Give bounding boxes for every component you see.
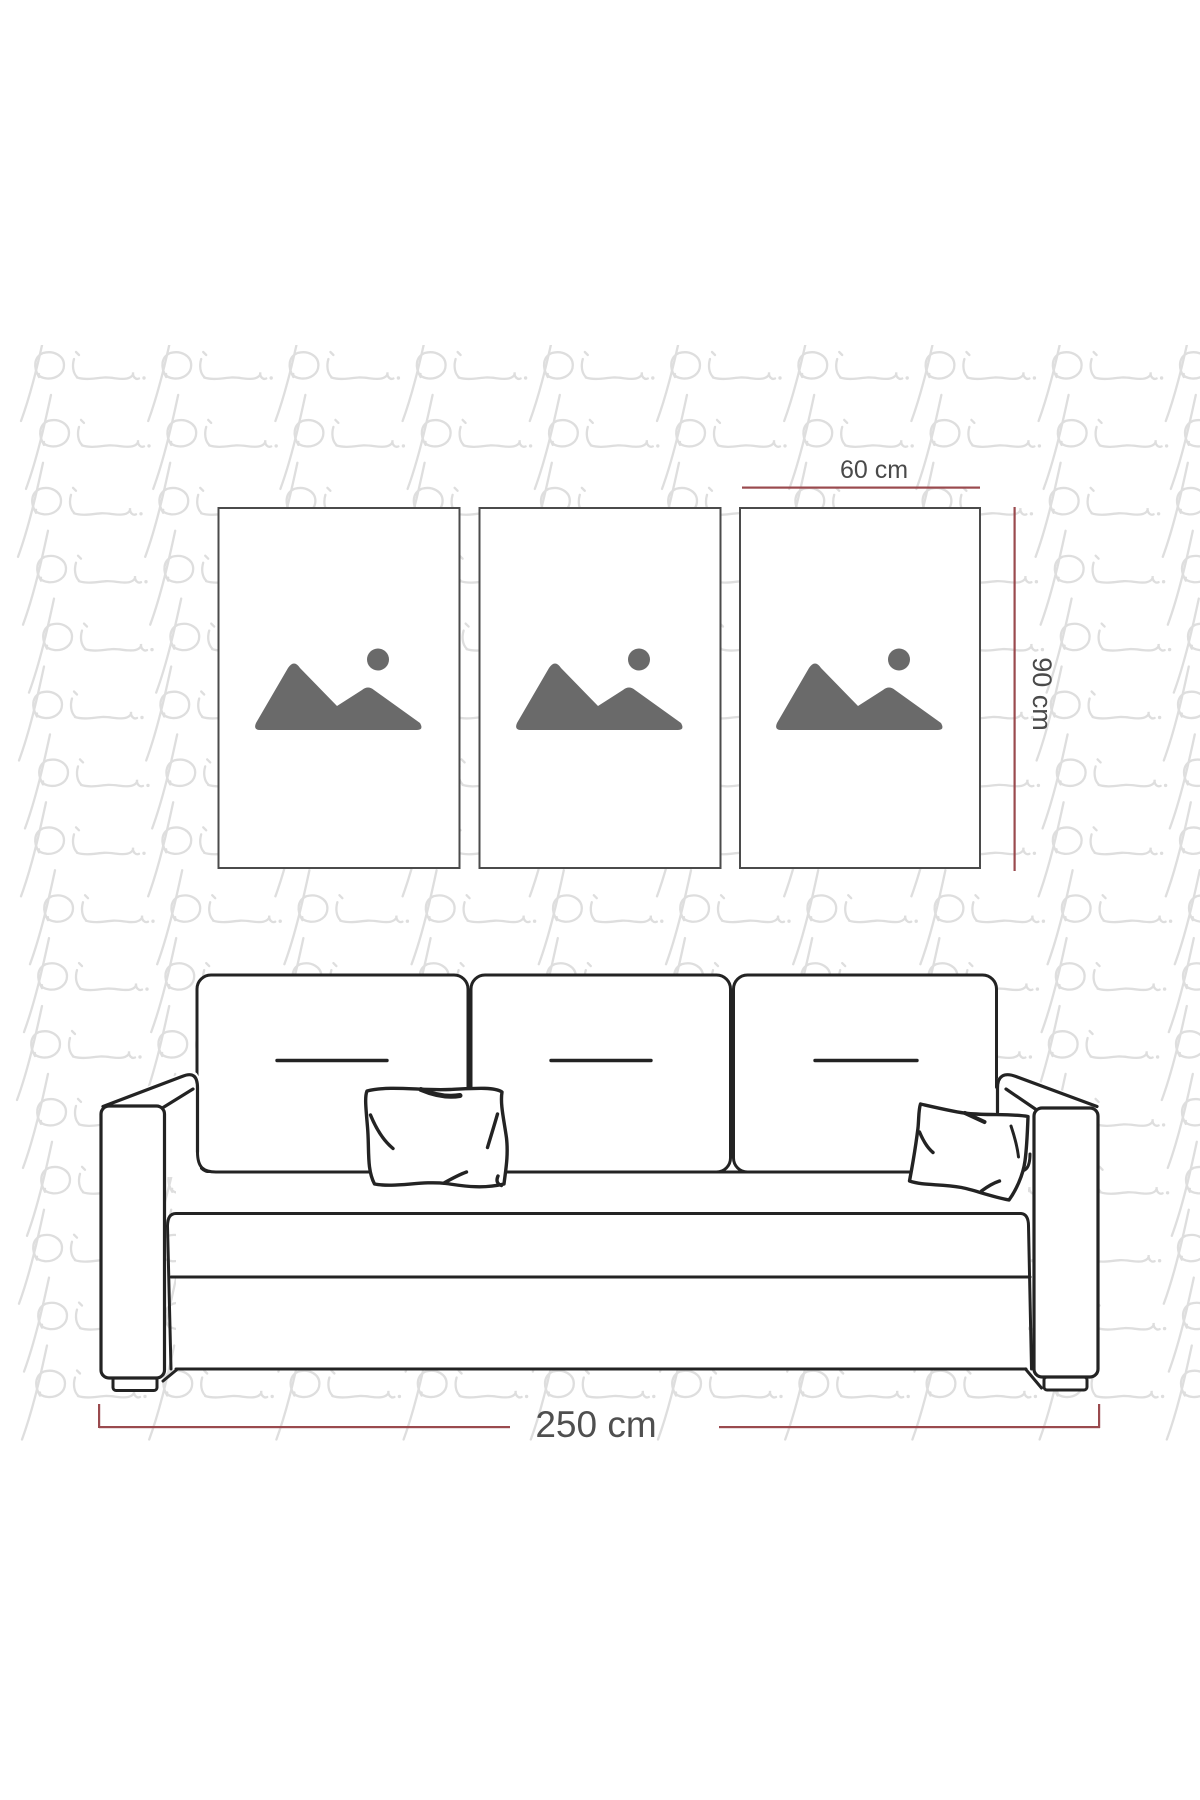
svg-text:60 cm: 60 cm bbox=[840, 456, 908, 484]
svg-text:90 cm: 90 cm bbox=[1027, 657, 1057, 731]
svg-text:250 cm: 250 cm bbox=[535, 1404, 656, 1445]
